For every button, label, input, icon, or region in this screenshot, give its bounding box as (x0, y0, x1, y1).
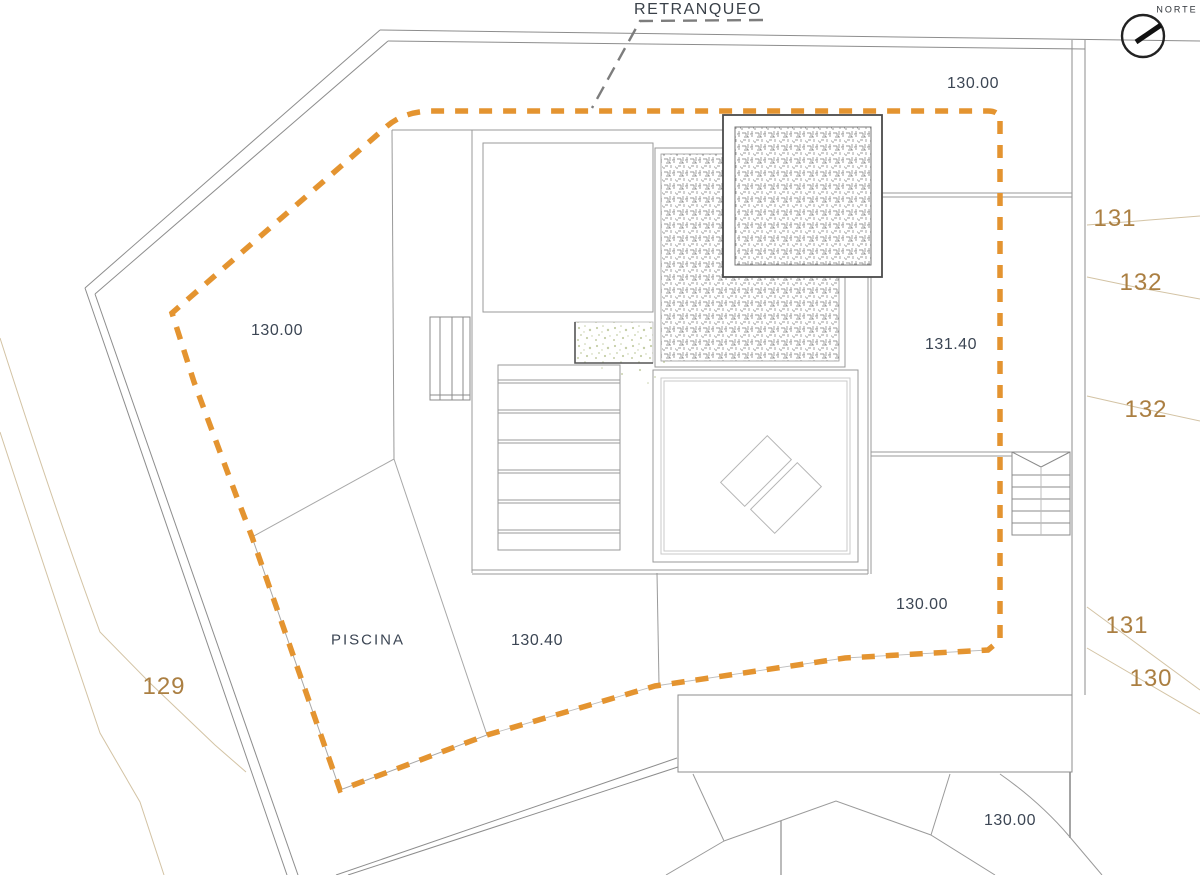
contour-label-ne-131: 131 (1093, 207, 1136, 231)
contour-label-se-131: 131 (1105, 614, 1148, 638)
louvered-roof (498, 365, 620, 550)
spot-elevation-west: 130.00 (251, 323, 303, 339)
south-retaining-wall (678, 695, 1072, 772)
spot-elevation-terrace-lower: 130.00 (896, 597, 948, 613)
road-edges (666, 774, 1102, 875)
contour-label-se-130: 130 (1129, 667, 1172, 691)
retranqueo-label: RETRANQUEO (634, 2, 762, 18)
norte-label: NORTE (1156, 6, 1197, 15)
room-outline (483, 143, 653, 312)
terrace (653, 370, 858, 562)
contour-label-ne-132-a: 132 (1119, 271, 1162, 295)
spot-elevation-top: 130.00 (947, 76, 999, 92)
spot-elevation-terrace-upper: 131.40 (925, 337, 977, 353)
west-stairs (430, 317, 470, 400)
contour-lines (0, 216, 1200, 875)
skylight-block (723, 115, 882, 277)
north-compass-icon (1122, 15, 1164, 57)
sun-loungers (721, 436, 822, 534)
spot-elevation-south: 130.00 (984, 813, 1036, 829)
contour-label-sw-129: 129 (142, 675, 185, 699)
contour-label-ne-132-b: 132 (1124, 398, 1167, 422)
west-wall-line (392, 130, 394, 459)
spot-elevation-pool-deck: 130.40 (511, 633, 563, 649)
pool-outline (252, 459, 487, 790)
site-plan-drawing (0, 0, 1200, 875)
piscina-label: PISCINA (331, 633, 405, 648)
east-stairs (1012, 452, 1070, 535)
site-plan: RETRANQUEO NORTE 130.00 130.00 131.40 13… (0, 0, 1200, 875)
